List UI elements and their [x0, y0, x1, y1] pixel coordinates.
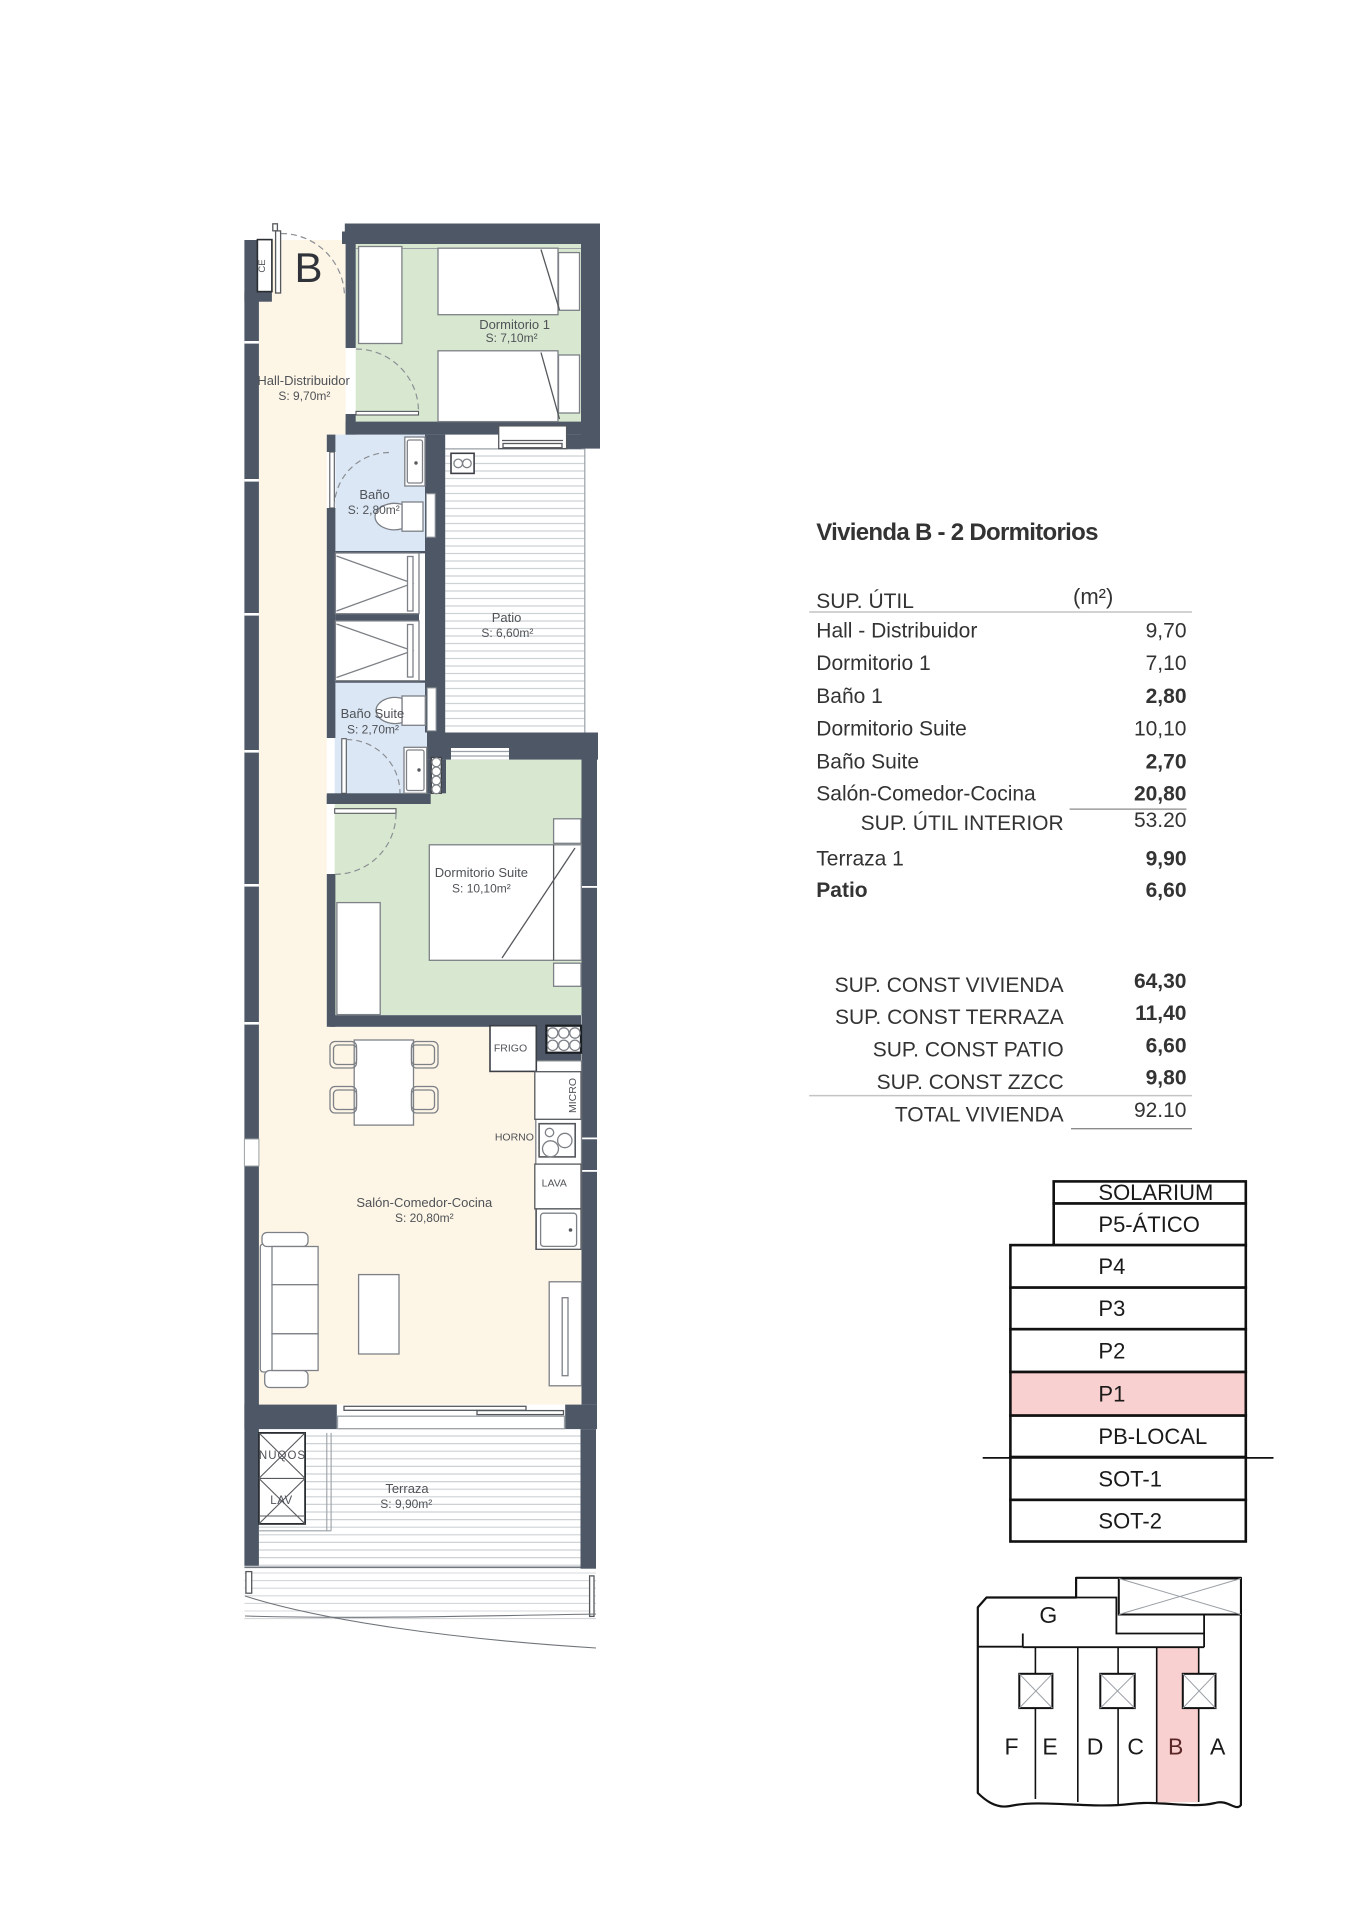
svg-text:Terraza 1: Terraza 1	[816, 848, 904, 871]
svg-text:P3: P3	[1098, 1296, 1125, 1321]
svg-text:LAV: LAV	[270, 1495, 292, 1507]
svg-text:S: 6,60m²: S: 6,60m²	[481, 626, 533, 640]
svg-text:SUP. ÚTIL: SUP. ÚTIL	[816, 590, 914, 613]
svg-text:PB-LOCAL: PB-LOCAL	[1098, 1424, 1207, 1449]
svg-text:Patio: Patio	[816, 879, 867, 902]
svg-text:S: 9,70m²: S: 9,70m²	[278, 389, 330, 403]
svg-text:SUP. ÚTIL INTERIOR: SUP. ÚTIL INTERIOR	[861, 812, 1064, 835]
svg-text:Baño: Baño	[359, 487, 389, 502]
svg-text:B: B	[294, 244, 322, 291]
svg-text:SUP. CONST TERRAZA: SUP. CONST TERRAZA	[835, 1006, 1064, 1029]
svg-text:SOLARIUM: SOLARIUM	[1098, 1180, 1213, 1205]
svg-text:10,10: 10,10	[1134, 717, 1187, 740]
svg-text:Dormitorio 1: Dormitorio 1	[816, 652, 930, 675]
svg-text:S: 2,70m²: S: 2,70m²	[347, 723, 399, 737]
svg-text:FRIGO: FRIGO	[494, 1043, 527, 1055]
svg-text:NUQOS: NUQOS	[259, 1450, 306, 1462]
svg-text:9,80: 9,80	[1146, 1067, 1187, 1090]
svg-text:TOTAL VIVIENDA: TOTAL VIVIENDA	[895, 1103, 1064, 1126]
svg-text:S: 20,80m²: S: 20,80m²	[395, 1211, 454, 1225]
svg-text:Dormitorio Suite: Dormitorio Suite	[816, 717, 967, 740]
svg-text:Hall - Distribuidor: Hall - Distribuidor	[816, 620, 977, 643]
svg-text:P4: P4	[1098, 1254, 1125, 1279]
svg-text:S: 7,10m²: S: 7,10m²	[486, 331, 538, 345]
svg-text:G: G	[1039, 1602, 1057, 1628]
svg-text:6,60: 6,60	[1146, 1035, 1187, 1058]
svg-text:Terraza: Terraza	[385, 1481, 429, 1496]
svg-text:E: E	[1042, 1733, 1057, 1759]
svg-text:P2: P2	[1098, 1338, 1125, 1363]
svg-text:53.20: 53.20	[1134, 809, 1187, 832]
svg-text:B: B	[1168, 1733, 1183, 1759]
svg-text:LAVA: LAVA	[542, 1178, 567, 1190]
svg-text:CE: CE	[257, 259, 268, 272]
svg-text:64,30: 64,30	[1134, 970, 1187, 993]
svg-text:9,70: 9,70	[1146, 620, 1187, 643]
svg-text:SUP. CONST PATIO: SUP. CONST PATIO	[873, 1039, 1064, 1062]
svg-text:F: F	[1004, 1733, 1018, 1759]
svg-text:P1: P1	[1098, 1382, 1125, 1407]
svg-text:C: C	[1127, 1733, 1144, 1759]
svg-text:Baño Suite: Baño Suite	[341, 706, 405, 721]
svg-text:Hall-Distribuidor: Hall-Distribuidor	[257, 373, 350, 388]
svg-text:Patio: Patio	[492, 610, 522, 625]
svg-text:Vivienda B - 2 Dormitorios: Vivienda B - 2 Dormitorios	[816, 519, 1098, 546]
svg-text:SUP. CONST VIVIENDA: SUP. CONST VIVIENDA	[835, 974, 1064, 997]
svg-text:11,40: 11,40	[1135, 1002, 1186, 1025]
svg-text:(m²): (m²)	[1073, 584, 1113, 609]
svg-text:2,80: 2,80	[1146, 685, 1187, 708]
svg-text:A: A	[1210, 1733, 1226, 1759]
svg-text:2,70: 2,70	[1146, 750, 1187, 773]
svg-text:Baño 1: Baño 1	[816, 685, 883, 708]
svg-text:P5-ÁTICO: P5-ÁTICO	[1098, 1212, 1199, 1237]
svg-text:92.10: 92.10	[1134, 1099, 1187, 1122]
svg-text:Salón-Comedor-Cocina: Salón-Comedor-Cocina	[356, 1195, 493, 1210]
svg-text:20,80: 20,80	[1134, 783, 1187, 806]
svg-text:SOT-2: SOT-2	[1098, 1509, 1162, 1534]
svg-text:9,90: 9,90	[1146, 848, 1187, 871]
svg-text:SOT-1: SOT-1	[1098, 1466, 1162, 1491]
svg-text:Baño Suite: Baño Suite	[816, 750, 919, 773]
svg-text:D: D	[1087, 1733, 1104, 1759]
svg-text:S: 2,80m²: S: 2,80m²	[348, 503, 400, 517]
svg-text:HORNO: HORNO	[495, 1132, 534, 1144]
svg-text:7,10: 7,10	[1146, 652, 1187, 675]
svg-text:SUP. CONST ZZCC: SUP. CONST ZZCC	[877, 1071, 1064, 1094]
svg-text:Dormitorio 1: Dormitorio 1	[479, 317, 550, 332]
svg-text:MICRO: MICRO	[567, 1078, 579, 1113]
svg-text:S: 9,90m²: S: 9,90m²	[380, 1497, 432, 1511]
svg-text:S: 10,10m²: S: 10,10m²	[452, 882, 511, 896]
svg-text:Salón-Comedor-Cocina: Salón-Comedor-Cocina	[816, 783, 1036, 806]
svg-text:Dormitorio Suite: Dormitorio Suite	[435, 865, 528, 880]
svg-text:6,60: 6,60	[1146, 879, 1187, 902]
